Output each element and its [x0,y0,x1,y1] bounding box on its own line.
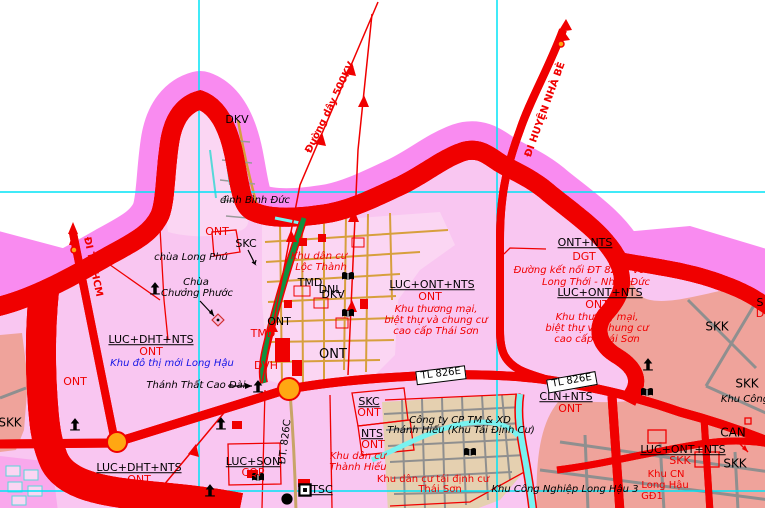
zone-code: ONT [127,474,151,486]
place-name: Khu Công Nghiệp Long Hậu 3 [491,485,638,496]
zone-code: ONT [361,439,385,451]
road-label-di-tp-hcm: ĐI TP. HCM [81,236,104,298]
place-name: đình Bình Đức [220,196,290,207]
zone-code: ONT [585,299,609,311]
zone-annotation: Khu thương mại, [556,313,639,324]
place-name: Thánh Hiếu (Khu Tái Định Cư) [387,426,534,437]
zone-annotation: biệt thự và chung cư [384,316,487,327]
zone-code: LUC+DHT+NTS [96,462,181,474]
zone-annotation: Khu đô thị mới Long Hậu [110,359,234,370]
zone-code: TMD [298,277,323,289]
map-canvas[interactable]: ĐI TP. HCMĐI HUYỆN NHÀ BÈĐường dây 500KV… [0,0,765,508]
zone-code: ONT [267,316,291,328]
zone-code: CLN+NTS [539,391,592,403]
place-name: Thánh Thất Cao Đài [146,381,245,392]
road-label-di-huyen-nha-be: ĐI HUYỆN NHÀ BÈ [524,61,568,159]
zone-code: ONT+NTS [558,237,613,249]
zone-annotation: Khu dân cư [330,452,386,463]
road-annotation: Đường kết nối ĐT 826E với đường [514,266,683,277]
zone-code: ONT [205,226,229,238]
road-label-dt-826c: ĐT. 826C [278,419,294,465]
zone-code: ONT [139,346,163,358]
zone-code: ONT [63,376,87,388]
zone-code: CAN [720,427,746,440]
zone-code: SKK [0,417,22,430]
zone-annotation: Thành Hiếu [329,463,386,474]
zone-code: TSC [311,484,332,496]
zone-code: TMD [251,328,276,340]
zone-code: LUC+DHT+NTS [108,334,193,346]
zone-code: DKV [321,289,344,301]
zone-annotation: Lộc Thành [295,263,347,274]
zone-annotation: biệt thự và chung cư [545,324,648,335]
place-name: chùa Long Phú [154,253,228,264]
zone-code: SKK [705,321,728,334]
map-labels: ĐI TP. HCMĐI HUYỆN NHÀ BÈĐường dây 500KV… [0,0,765,508]
zone-code: SKK [735,378,758,391]
zone-annotation: Khu CN [648,470,685,481]
zone-annotation: Khu dân cư [291,252,347,263]
zone-annotation: GĐ1 [641,492,663,503]
zone-code: ONT [418,291,442,303]
zone-code: DVH [254,360,278,372]
zone-code: ONT [319,348,347,362]
place-name: Khu Công [721,395,765,406]
zone-annotation: Khu thương mại, [395,305,478,316]
place-name: Chùa [183,278,209,289]
zone-annotation: cao cấp Thái Sơn [393,327,478,338]
zone-code: D [756,308,764,320]
zone-annotation: cao cấp Thái Sơn [554,335,639,346]
zone-code: DKV [225,114,248,126]
zone-annotation: Long Hậu [641,481,688,492]
zone-code: LUC+ONT+NTS [557,287,642,299]
road-box-tl-826e-1: TL 826E [415,365,467,385]
road-annotation: Long Thới - Nhơn Đức [542,278,650,289]
zone-code: SKK [669,455,690,467]
zone-code: ONT [558,403,582,415]
zone-code: SKK [723,458,746,471]
zone-code: SKC [235,238,256,250]
zone-code: LUC+ONT+NTS [389,279,474,291]
zone-code: DGT [572,251,595,263]
zone-annotation: Thái Sơn [418,485,461,496]
zone-code: ONT [357,407,381,419]
place-name: Chưởng Phước [161,289,233,300]
zone-code: CQP [242,467,265,479]
power-line-label-500kv: Đường dây 500KV [304,61,357,156]
